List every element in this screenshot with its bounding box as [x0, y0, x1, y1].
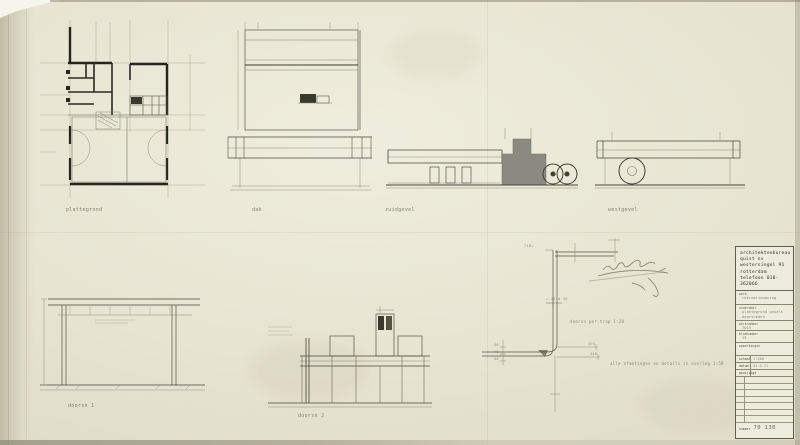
dim-40b: 40: [494, 350, 499, 354]
field-werk: werk rekreatiewoning: [736, 291, 793, 305]
field-value: rekreatiewoning: [739, 296, 793, 301]
dim-495: 495: [588, 342, 595, 346]
stair-silhouette: [502, 139, 546, 185]
illegible-note: [268, 327, 293, 335]
dim-748: 748+: [524, 244, 534, 248]
section-1-drawing: [40, 299, 205, 390]
meta-label: schaal: [736, 356, 751, 362]
scanned-architectural-sheet: plattegrond dak zuidgevel westgevel door…: [0, 0, 800, 445]
meta-label: datum: [736, 363, 751, 369]
label-section-1: doorsn 1: [68, 403, 94, 409]
meta-value: 1:100: [751, 356, 764, 362]
label-plan: plattegrond: [66, 207, 102, 213]
field-bladnummer: bladnummer 15: [736, 331, 793, 343]
field-value: doorsneden: [739, 315, 793, 320]
chimney-fill: [378, 316, 384, 330]
section-2-drawing: [268, 306, 432, 407]
label-stair-detail: doorsn per trap 1:20: [570, 319, 624, 324]
title-block: architektenbureau quist nv westersingel …: [735, 246, 794, 439]
field-opmerkingen: opmerkingen: [736, 343, 793, 356]
sheet-number-value: 70 130: [754, 425, 776, 431]
architectural-linework: [0, 0, 800, 445]
label-south-elevation: zuidgevel: [385, 207, 415, 213]
firm-phone: telefoon 010-362066: [740, 276, 790, 288]
plan-hatched-cell: [131, 97, 142, 104]
meta-value: [751, 370, 753, 376]
meta-value: 24-6-71: [751, 363, 768, 369]
floor-plan-drawing: [40, 20, 205, 198]
meta-schaal: schaal 1:100: [736, 356, 793, 363]
dim-40a: 40: [494, 343, 499, 347]
firm-stamp: architektenbureau quist nv westersingel …: [736, 247, 793, 291]
round-tank: [619, 158, 645, 184]
label-west-elevation: westgevel: [608, 207, 638, 213]
sheet-number: nummer 70 130: [736, 423, 793, 433]
dim-346: 346: [590, 352, 597, 356]
west-elevation-drawing: [595, 132, 745, 188]
dim-25d46: + 25 d 46: [546, 297, 568, 301]
handwritten-note: [589, 260, 668, 296]
field-value: 7015: [739, 326, 793, 331]
roof-plan-drawing: [228, 22, 372, 190]
sheet-number-label: nummer: [739, 427, 751, 431]
meta-datum: datum 24-6-71: [736, 363, 793, 370]
field-label: opmerkingen: [739, 344, 793, 348]
stair-detail-drawing: [482, 238, 620, 412]
field-value: 15: [739, 336, 793, 341]
chimney-fill: [386, 316, 392, 330]
field-onderdeel: onderdeel plattegrond gevels doorsneden: [736, 305, 793, 321]
illegible-note: [95, 320, 135, 323]
general-note: alle afmetingen en details in overleg 1:…: [610, 361, 724, 366]
south-elevation-drawing: [386, 128, 578, 188]
dim-40c: 40: [494, 357, 499, 361]
firm-address: westersingel 91: [740, 263, 790, 269]
meta-gewijzigd: gewijzigd: [736, 370, 793, 377]
label-roof: dak: [252, 207, 262, 213]
label-section-2: doorsn 2: [298, 413, 324, 419]
meta-label: gewijzigd: [736, 370, 751, 376]
field-werknummer: werknummer 7015: [736, 321, 793, 331]
